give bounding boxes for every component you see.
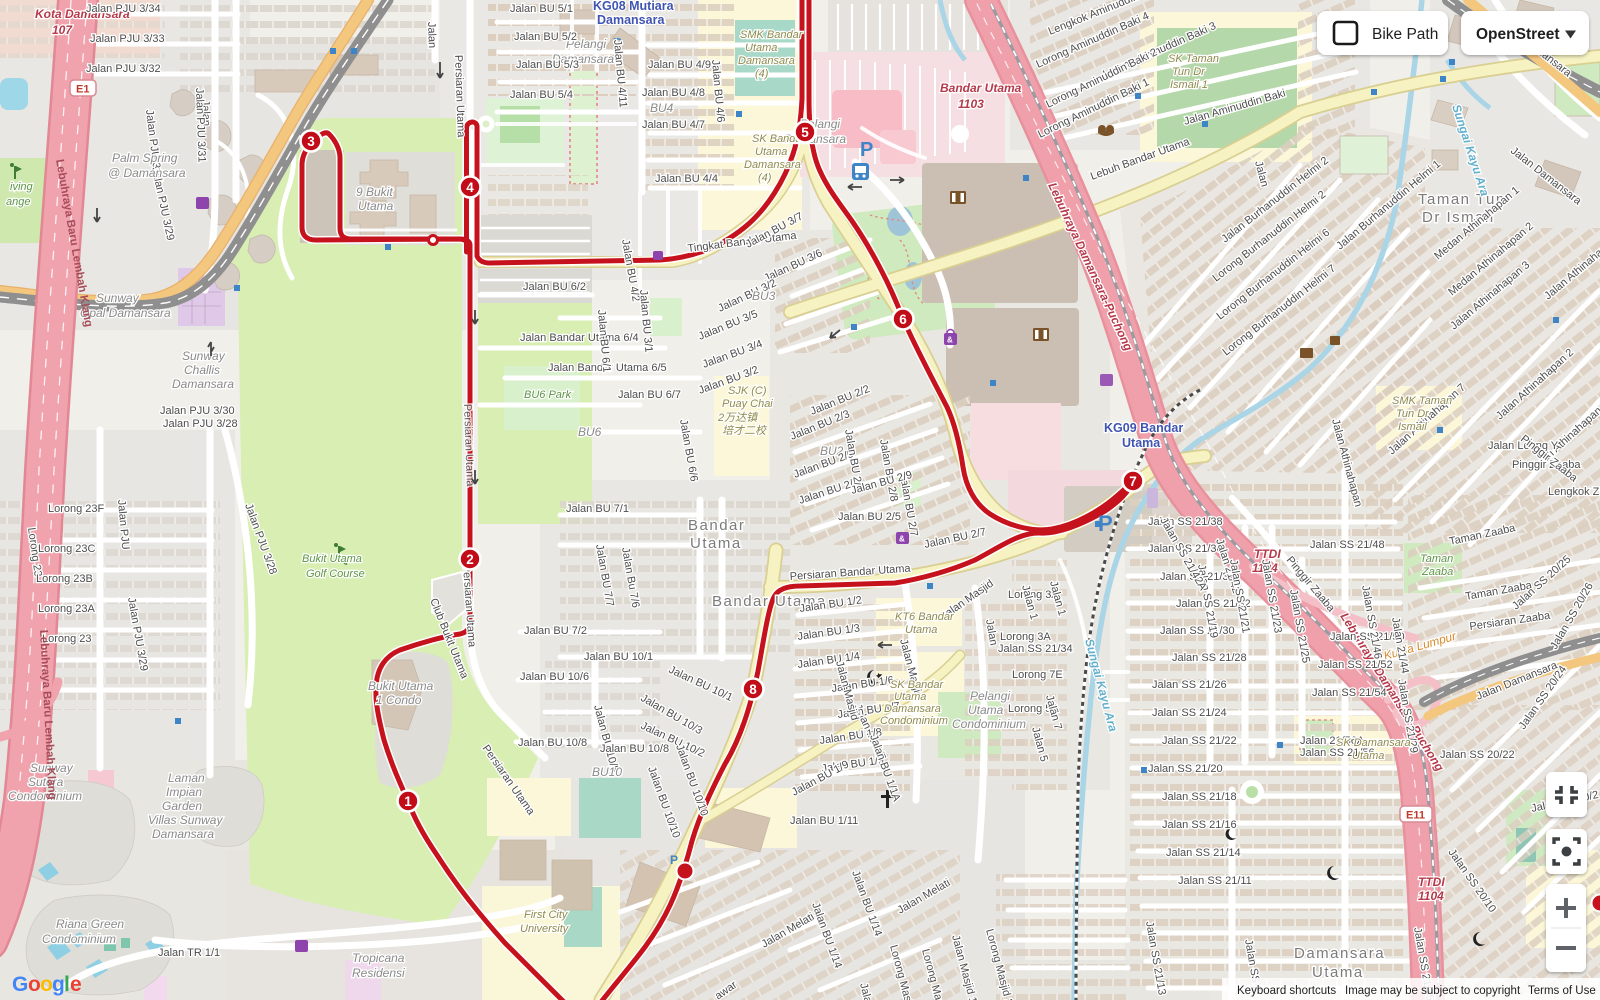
svg-text:Lorong 23C: Lorong 23C [38, 543, 96, 555]
svg-text:Damansara: Damansara [738, 55, 795, 67]
svg-text:Utama: Utama [745, 42, 777, 54]
svg-text:Jalan SS 21/48: Jalan SS 21/48 [1310, 539, 1385, 551]
svg-text:Jalan BU 5/1: Jalan BU 5/1 [510, 3, 573, 15]
svg-text:107: 107 [52, 23, 73, 37]
svg-text:SJK (C): SJK (C) [728, 385, 767, 397]
svg-text:Keyboard shortcuts: Keyboard shortcuts [1237, 985, 1336, 997]
svg-text:E1: E1 [76, 84, 89, 96]
svg-text:Jalan PJU 3/34: Jalan PJU 3/34 [86, 3, 161, 15]
svg-text:P: P [1098, 511, 1113, 536]
svg-text:OpenStreet: OpenStreet [1476, 26, 1560, 43]
svg-text:SK Taman: SK Taman [1168, 53, 1219, 65]
svg-text:1103: 1103 [958, 97, 984, 111]
svg-text:iving: iving [10, 181, 34, 193]
svg-text:BU10: BU10 [592, 765, 622, 779]
svg-text:P: P [670, 853, 678, 867]
svg-text:Bike Path: Bike Path [1372, 26, 1438, 43]
svg-text:o: o [40, 973, 52, 996]
svg-text:Laman: Laman [168, 771, 205, 785]
svg-text:培才二校: 培才二校 [722, 424, 768, 437]
svg-text:Jalan SS 21/54: Jalan SS 21/54 [1312, 687, 1387, 699]
svg-text:2万达镇: 2万达镇 [717, 411, 759, 424]
svg-text:Taman: Taman [1420, 553, 1453, 565]
svg-text:Bukit Utama: Bukit Utama [368, 679, 434, 693]
svg-text:Jalan BU 6/2: Jalan BU 6/2 [523, 281, 586, 293]
svg-text:Sunway: Sunway [182, 349, 226, 363]
svg-text:e: e [70, 973, 81, 996]
svg-text:Jalan PJU 3/33: Jalan PJU 3/33 [90, 33, 165, 45]
svg-text:Jalan BU 4/7: Jalan BU 4/7 [642, 119, 705, 131]
svg-text:Golf Course: Golf Course [306, 568, 365, 580]
svg-text:TTDI: TTDI [1418, 875, 1445, 889]
svg-text:Damansara: Damansara [172, 377, 234, 391]
svg-text:4: 4 [466, 180, 474, 195]
svg-text:Condominium: Condominium [880, 715, 948, 727]
svg-text:7: 7 [1129, 474, 1137, 489]
svg-text:Jalan TR 1/1: Jalan TR 1/1 [158, 947, 220, 959]
svg-text:Image may be subject to copyri: Image may be subject to copyright [1345, 985, 1521, 997]
svg-text:Jalan SS 21/11: Jalan SS 21/11 [1178, 875, 1252, 887]
svg-text:Jalan BU 5/2: Jalan BU 5/2 [514, 31, 577, 43]
svg-text:Jalan Bandar Utama 6/4: Jalan Bandar Utama 6/4 [520, 332, 639, 344]
svg-text:Challis: Challis [184, 363, 220, 377]
svg-text:2: 2 [466, 552, 474, 567]
svg-text:Impian: Impian [166, 785, 202, 799]
svg-text:Jalan SS 21/52: Jalan SS 21/52 [1318, 659, 1393, 671]
svg-text:1104: 1104 [1418, 889, 1444, 903]
svg-text:@ Damansara: @ Damansara [108, 166, 186, 180]
svg-text:3: 3 [307, 134, 315, 149]
svg-text:Jalan SS 21/26: Jalan SS 21/26 [1152, 679, 1227, 691]
svg-text:Jalan PJU 3/28: Jalan PJU 3/28 [163, 418, 238, 430]
svg-text:Utama: Utama [894, 691, 926, 703]
svg-text:Riana Green: Riana Green [56, 917, 124, 931]
svg-text:(4): (4) [755, 68, 769, 80]
svg-text:KG08 Mutiara: KG08 Mutiara [593, 0, 675, 13]
svg-text:5: 5 [801, 125, 809, 140]
svg-text:Residensi: Residensi [352, 966, 405, 980]
svg-text:Condominium: Condominium [42, 932, 116, 946]
svg-text:Jalan SS 21/18: Jalan SS 21/18 [1162, 791, 1237, 803]
svg-text:Condominium: Condominium [952, 717, 1026, 731]
svg-text:Jalan SS 21/24: Jalan SS 21/24 [1152, 707, 1227, 719]
svg-text:Utama: Utama [905, 624, 937, 636]
svg-text:Jalan SS 20/22: Jalan SS 20/22 [1440, 749, 1515, 761]
svg-text:Jalan BU 5/4: Jalan BU 5/4 [510, 89, 573, 101]
svg-text:Utama: Utama [1122, 436, 1161, 450]
svg-text:KG09 Bandar: KG09 Bandar [1104, 421, 1183, 435]
svg-text:Damansara: Damansara [744, 159, 801, 171]
svg-text:E11: E11 [1406, 810, 1425, 822]
svg-text:1 Condo: 1 Condo [376, 693, 422, 707]
svg-text:Lorong 7E: Lorong 7E [1012, 669, 1063, 681]
svg-text:BU3: BU3 [752, 289, 776, 303]
svg-text:l: l [64, 973, 69, 996]
svg-text:ange: ange [6, 196, 30, 208]
svg-text:Bandar: Bandar [688, 517, 745, 534]
svg-text:Jalan BU 10/1: Jalan BU 10/1 [584, 651, 653, 663]
svg-text:SK Bandar: SK Bandar [890, 679, 945, 691]
svg-text:Condominium: Condominium [8, 789, 82, 803]
svg-text:Jalan SS 21/30: Jalan SS 21/30 [1160, 625, 1235, 637]
svg-text:Jalan BU 7/1: Jalan BU 7/1 [566, 503, 629, 515]
svg-text:Damansara: Damansara [152, 827, 214, 841]
svg-text:Jalan BU 7/2: Jalan BU 7/2 [524, 625, 587, 637]
svg-text:Sunway: Sunway [96, 291, 140, 305]
svg-text:g: g [52, 973, 64, 996]
svg-text:Jalan BU 6/7: Jalan BU 6/7 [618, 389, 681, 401]
svg-text:Jalan BU 10/8: Jalan BU 10/8 [600, 743, 669, 755]
svg-text:Palm Spring: Palm Spring [112, 151, 178, 165]
svg-text:Lorong 23B: Lorong 23B [36, 573, 93, 585]
svg-text:Damansara: Damansara [597, 13, 665, 27]
svg-text:Jalan BU 4/9: Jalan BU 4/9 [648, 59, 711, 71]
svg-text:SMK Taman: SMK Taman [1392, 395, 1452, 407]
svg-text:P: P [860, 139, 873, 161]
svg-text:Lorong 23A: Lorong 23A [38, 603, 96, 615]
svg-text:Lengkok Zaab: Lengkok Zaab [1548, 486, 1600, 498]
svg-text:Bukit Utama: Bukit Utama [302, 553, 362, 565]
svg-text:Jalan PJU 3/30: Jalan PJU 3/30 [160, 405, 235, 417]
svg-text:Ismail: Ismail [1398, 421, 1427, 433]
svg-text:BU6 Park: BU6 Park [524, 389, 572, 401]
svg-text:Jalan BU 10/6: Jalan BU 10/6 [520, 671, 589, 683]
svg-text:Utama: Utama [1352, 750, 1384, 762]
svg-text:Lorong 3A: Lorong 3A [1000, 631, 1051, 643]
svg-text:Zaaba: Zaaba [1421, 566, 1453, 578]
svg-text:Pelangi: Pelangi [970, 689, 1010, 703]
svg-text:Tropicana: Tropicana [352, 951, 405, 965]
svg-text:Jalan SS 21/22: Jalan SS 21/22 [1162, 735, 1237, 747]
svg-text:Jalan BU 4/4: Jalan BU 4/4 [655, 173, 718, 185]
svg-text:Jalan BU 1/11: Jalan BU 1/11 [790, 815, 858, 827]
svg-text:Jalan SS 21/34: Jalan SS 21/34 [998, 643, 1073, 655]
svg-text:Utama: Utama [968, 703, 1004, 717]
svg-text:Jalan BU 2/5: Jalan BU 2/5 [838, 511, 901, 523]
svg-text:Utama: Utama [755, 146, 787, 158]
svg-text:1: 1 [404, 794, 412, 809]
svg-text:Jalan PJU 3/32: Jalan PJU 3/32 [86, 63, 161, 75]
svg-text:SMK Bandar: SMK Bandar [740, 29, 804, 41]
svg-text:Jalan SS 21/20: Jalan SS 21/20 [1148, 763, 1223, 775]
svg-text:Puay Chai: Puay Chai [722, 398, 773, 410]
svg-text:Bandar Utama: Bandar Utama [940, 81, 1022, 95]
svg-text:Jalan SS 21/14: Jalan SS 21/14 [1166, 847, 1241, 859]
svg-text:SK Damansara: SK Damansara [1336, 737, 1411, 749]
svg-text:BU6: BU6 [578, 425, 602, 439]
svg-text:Damansara: Damansara [1294, 945, 1385, 962]
svg-text:Villas Sunway: Villas Sunway [148, 813, 223, 827]
svg-text:Jalan BU 10/8: Jalan BU 10/8 [518, 737, 587, 749]
svg-text:Jalan BU 4/8: Jalan BU 4/8 [642, 87, 705, 99]
svg-text:First City: First City [524, 909, 569, 921]
svg-text:&: & [947, 336, 953, 345]
svg-text:Terms of Use: Terms of Use [1528, 985, 1596, 997]
svg-text:6: 6 [899, 312, 907, 327]
svg-text:&: & [899, 535, 905, 544]
svg-text:Jalan SS 21/16: Jalan SS 21/16 [1162, 819, 1237, 831]
svg-text:Jalan BU 5/3: Jalan BU 5/3 [516, 59, 579, 71]
svg-text:8: 8 [749, 682, 757, 697]
svg-text:G: G [12, 973, 28, 996]
svg-text:Garden: Garden [162, 799, 202, 813]
svg-text:Ismail 1: Ismail 1 [1170, 79, 1208, 91]
svg-text:Jalan: Jalan [425, 22, 438, 49]
svg-text:9 Bukit: 9 Bukit [356, 185, 393, 199]
svg-text:Damansara: Damansara [884, 703, 941, 715]
svg-text:Utama: Utama [358, 199, 394, 213]
svg-text:KT6 Bandar: KT6 Bandar [895, 611, 955, 623]
svg-text:Utama: Utama [690, 535, 742, 552]
svg-text:University: University [520, 923, 570, 935]
svg-text:Lorong 23F: Lorong 23F [48, 503, 105, 515]
svg-text:BU4: BU4 [650, 101, 674, 115]
svg-text:Tun Dr: Tun Dr [1396, 408, 1430, 420]
svg-text:(4): (4) [758, 172, 772, 184]
svg-text:Jalan SS 21/28: Jalan SS 21/28 [1172, 652, 1247, 664]
svg-text:Tun Dr: Tun Dr [1172, 66, 1206, 78]
svg-text:o: o [28, 973, 40, 996]
